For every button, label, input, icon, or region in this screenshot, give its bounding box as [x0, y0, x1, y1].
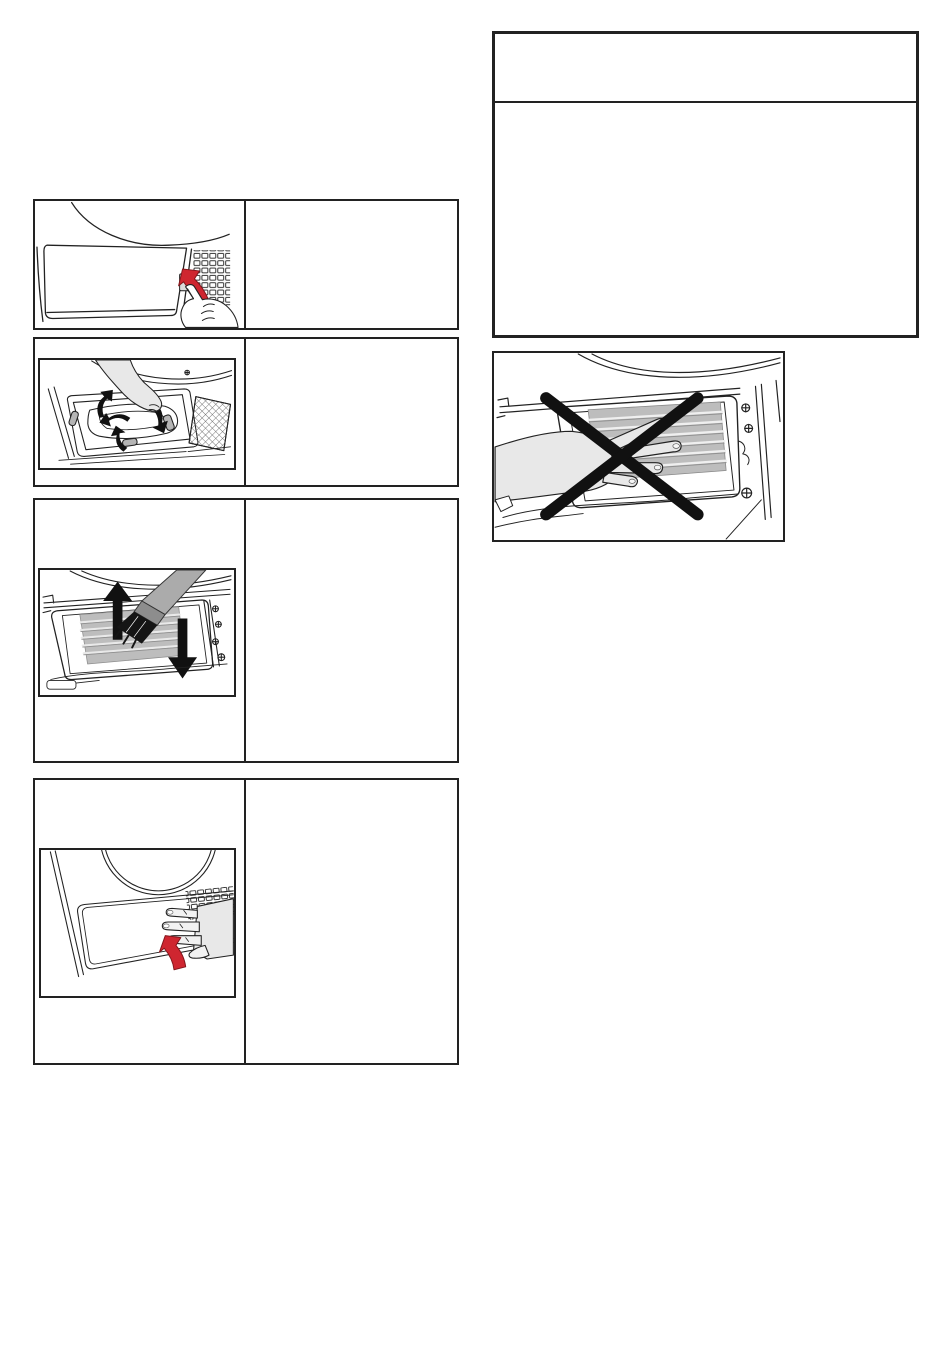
- step-box-4: [33, 778, 459, 1065]
- step-2-figure-cell: [35, 339, 246, 485]
- drum-arc: [578, 354, 780, 377]
- drum-arc: [70, 571, 231, 589]
- vacuum-fins-figure: [40, 570, 234, 695]
- step-2-text-cell: [246, 339, 457, 485]
- locking-lever-bottom: [122, 438, 137, 447]
- step-3-figure-cell: [35, 500, 246, 761]
- step-4-framed-figure: [39, 848, 236, 998]
- step-1-figure-cell: [35, 201, 246, 328]
- manual-page: [0, 0, 950, 1364]
- side-panel: [755, 380, 779, 519]
- step-box-3: [33, 498, 459, 763]
- step-3-text-cell: [246, 500, 457, 761]
- cabinet-edge: [50, 851, 83, 977]
- step-4-text-cell: [246, 780, 457, 1063]
- open-flap-latch-figure: [35, 201, 244, 328]
- close-flap-figure: [41, 850, 234, 996]
- step-box-1: [33, 199, 459, 330]
- notice-box: [492, 31, 919, 338]
- turn-locking-levers-figure: [40, 360, 234, 468]
- step-box-2: [33, 337, 459, 487]
- drum-arc: [72, 203, 229, 246]
- notice-box-header: [495, 34, 916, 103]
- step-1-text-cell: [246, 201, 457, 328]
- step-2-framed-figure: [38, 358, 236, 470]
- prohibition-figure: [492, 351, 785, 542]
- service-flap: [44, 245, 187, 318]
- step-4-figure-cell: [35, 780, 246, 1063]
- do-not-touch-fins-figure: [494, 353, 783, 540]
- step-3-framed-figure: [38, 568, 236, 697]
